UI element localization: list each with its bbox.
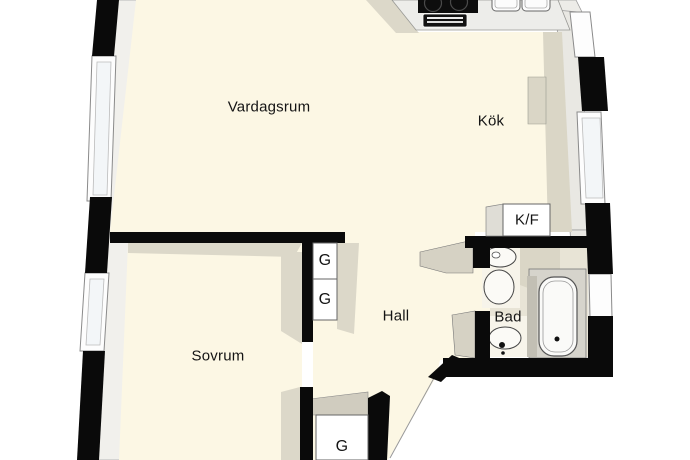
washbasin — [489, 327, 521, 349]
window-pane — [582, 118, 603, 198]
interior-wall — [302, 235, 313, 342]
oven-line — [427, 21, 463, 23]
room-label-living: Vardagsrum — [228, 99, 311, 116]
oven-handle — [427, 17, 463, 19]
wall-segment — [300, 387, 313, 460]
oven-front — [423, 14, 467, 27]
room-label-bedroom: Sovrum — [192, 348, 245, 365]
wall-segment — [368, 391, 390, 460]
window — [570, 12, 595, 57]
bedroom-corner-shadow — [281, 387, 300, 460]
room-label-bathroom: Bad — [494, 309, 521, 326]
bathtub — [539, 277, 577, 356]
basin-drain — [501, 351, 505, 355]
room-label-hall: Hall — [383, 308, 410, 325]
wall-segment — [443, 358, 613, 377]
wardrobe-label: G — [319, 291, 332, 309]
kitchen-shaft — [528, 77, 546, 124]
window — [589, 274, 612, 317]
wardrobe-label: G — [336, 438, 349, 456]
fridge-freezer-label: K/F — [515, 212, 539, 229]
sink-basin-left — [492, 0, 520, 11]
basin-faucet — [499, 342, 505, 348]
toilet-button — [492, 252, 500, 258]
fridge-side-face — [486, 204, 503, 236]
bedroom-right-shadow — [281, 252, 302, 344]
sink-basin-right — [522, 0, 550, 11]
bathtub-drain — [555, 337, 560, 342]
bathroom-wall — [475, 311, 490, 358]
bathroom-wall — [473, 236, 490, 268]
bath-divider — [527, 276, 537, 357]
wall-segment — [578, 57, 608, 111]
bathroom-door-jamb-lower — [452, 311, 475, 358]
floor-plan: Vardagsrum Kök Hall Bad Sovrum G G G K/F — [0, 0, 690, 460]
room-label-kitchen: Kök — [478, 113, 504, 130]
floor-plan-drawing — [0, 0, 690, 460]
wardrobe-label: G — [319, 252, 332, 270]
stove-burner — [425, 0, 442, 12]
toilet-bowl — [484, 270, 514, 304]
